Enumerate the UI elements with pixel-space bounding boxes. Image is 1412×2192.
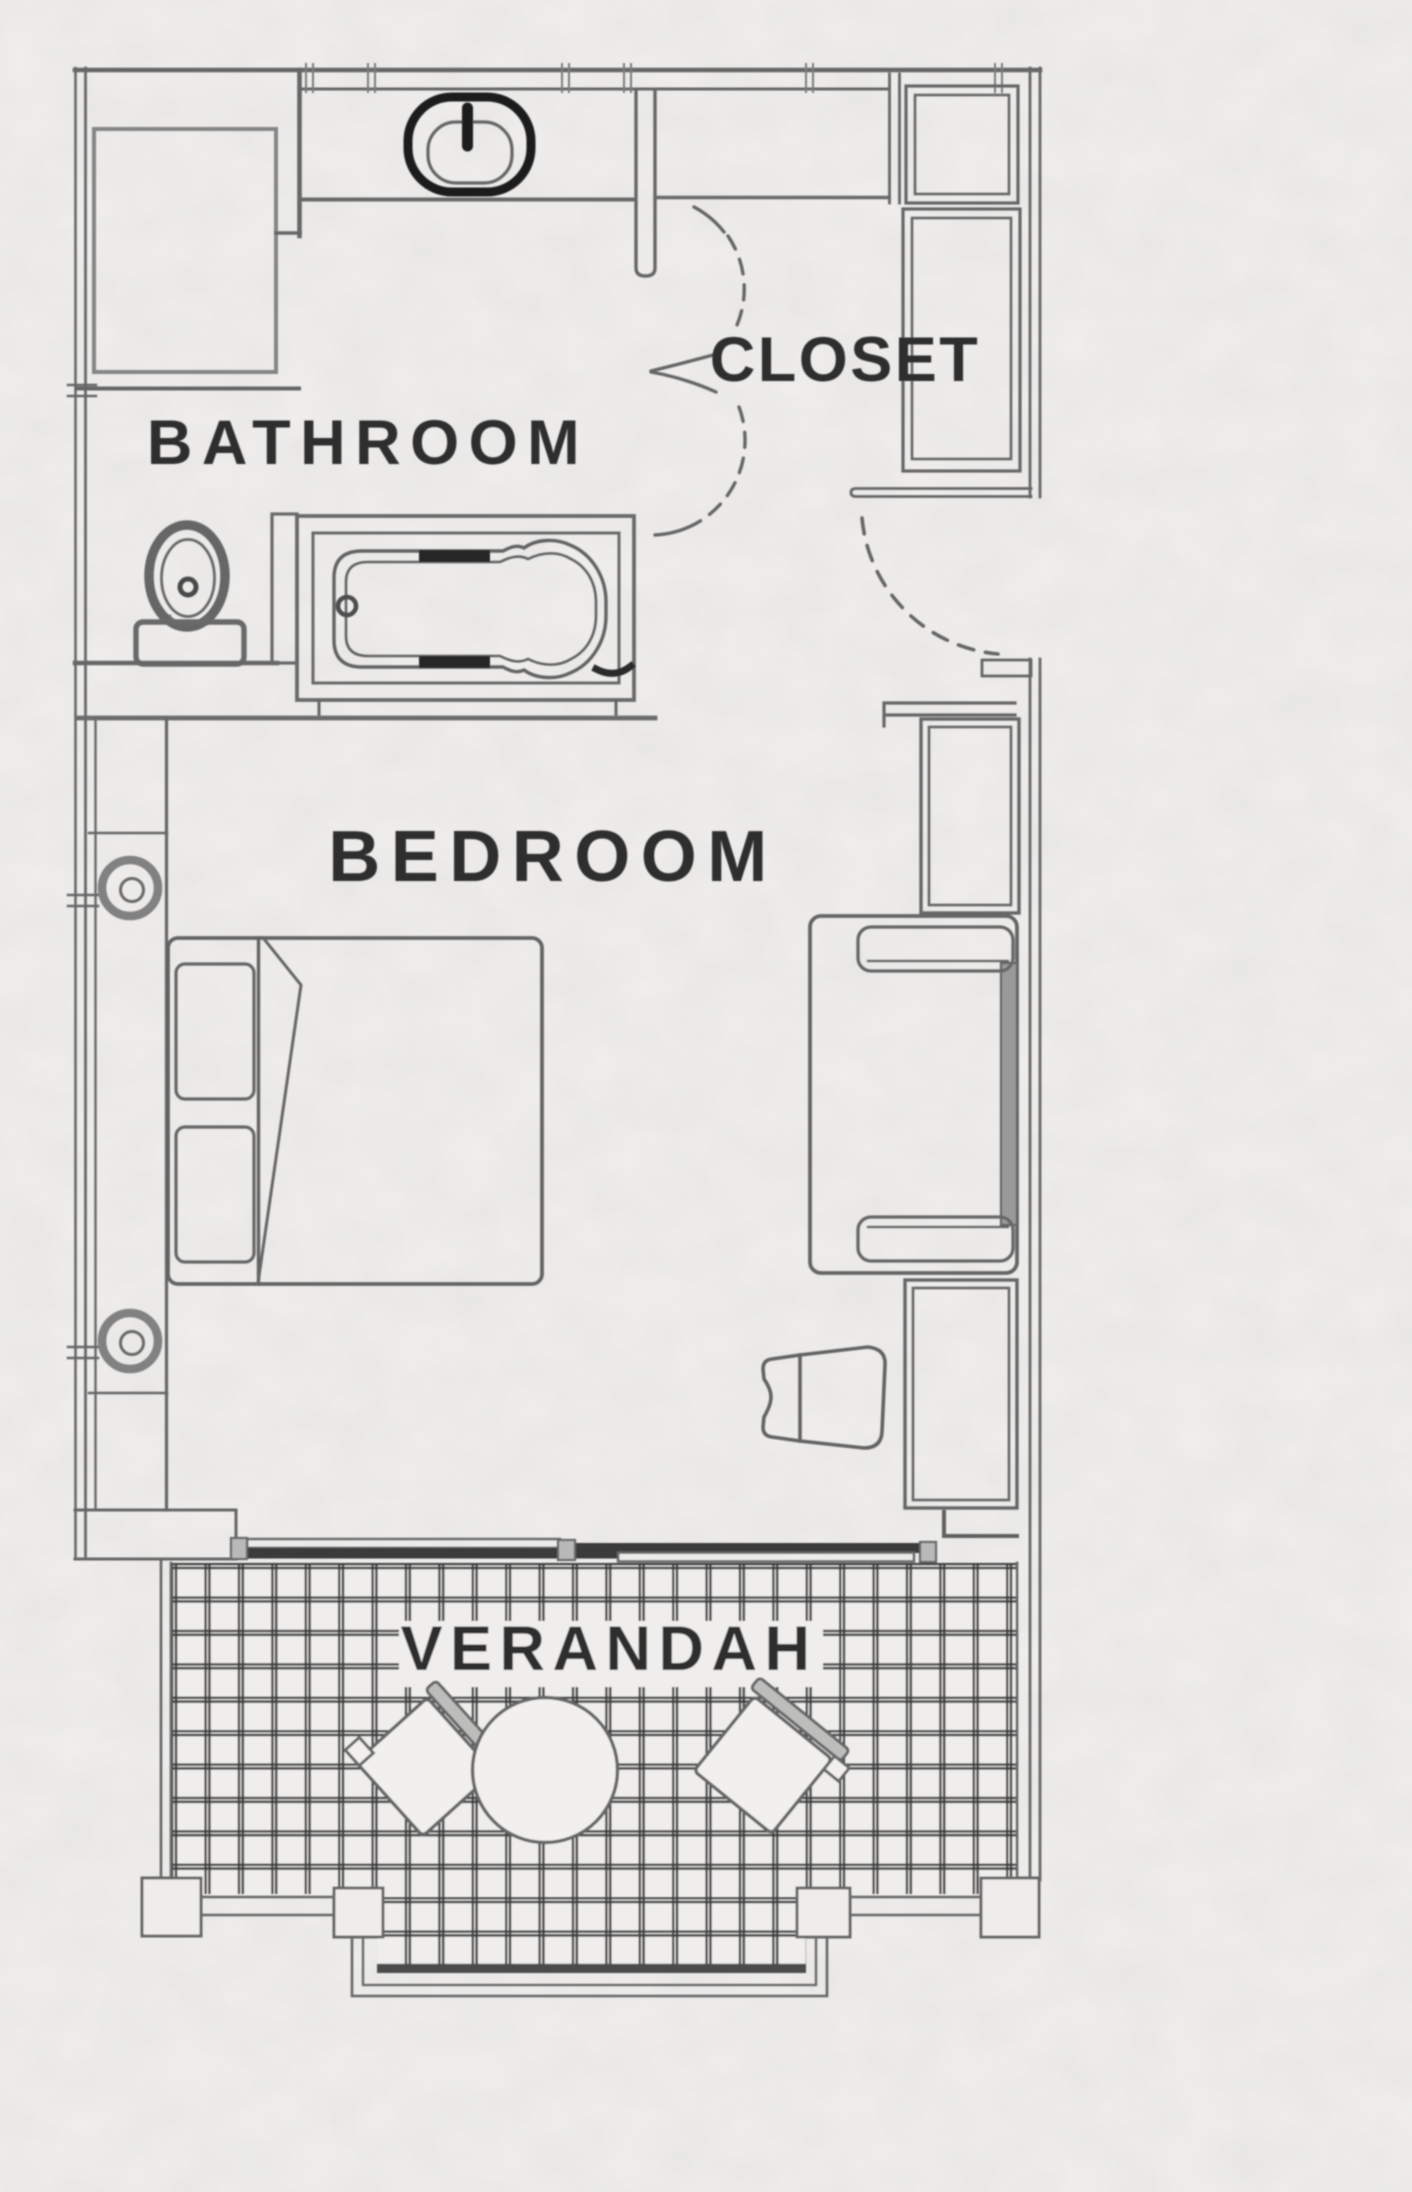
svg-text:CLOSET: CLOSET (710, 325, 981, 395)
svg-text:BEDROOM: BEDROOM (328, 817, 778, 897)
svg-text:VERANDAH: VERANDAH (400, 1614, 817, 1684)
svg-text:BATHROOM: BATHROOM (147, 408, 589, 478)
